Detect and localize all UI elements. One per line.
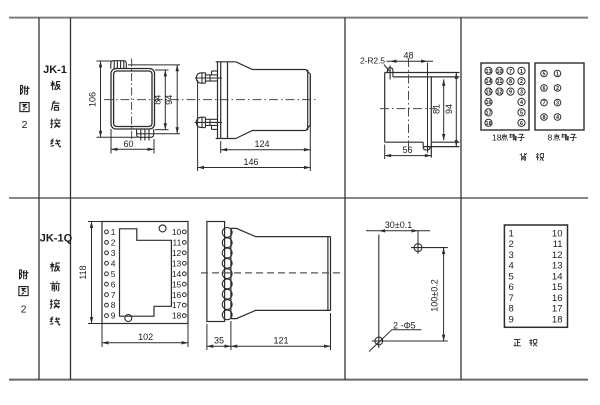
- svg-text:8: 8: [543, 115, 546, 121]
- svg-text:6: 6: [111, 279, 116, 289]
- svg-text:8: 8: [509, 304, 514, 315]
- svg-text:6: 6: [509, 282, 514, 293]
- svg-text:6: 6: [543, 86, 546, 92]
- svg-text:94: 94: [444, 104, 454, 114]
- svg-text:18: 18: [486, 121, 492, 127]
- svg-text:17: 17: [172, 300, 182, 310]
- svg-text:7: 7: [509, 293, 514, 304]
- svg-text:11: 11: [497, 79, 503, 85]
- svg-text:100±0.2: 100±0.2: [429, 279, 439, 311]
- svg-text:2: 2: [21, 304, 27, 316]
- svg-text:18: 18: [492, 132, 502, 142]
- svg-text:106: 106: [87, 92, 97, 107]
- svg-text:1: 1: [556, 72, 559, 78]
- svg-text:2-R2.5: 2-R2.5: [360, 56, 385, 66]
- svg-text:84: 84: [152, 95, 162, 105]
- svg-text:60: 60: [123, 139, 133, 149]
- svg-text:81: 81: [432, 104, 442, 114]
- svg-text:12: 12: [552, 250, 563, 261]
- svg-text:124: 124: [254, 139, 269, 149]
- svg-text:16: 16: [486, 100, 492, 106]
- svg-text:4: 4: [111, 258, 116, 268]
- svg-text:7: 7: [543, 101, 546, 107]
- svg-text:12: 12: [497, 90, 503, 96]
- svg-text:16: 16: [172, 290, 182, 300]
- svg-text:18: 18: [172, 311, 182, 321]
- svg-text:14: 14: [172, 269, 182, 279]
- svg-text:17: 17: [486, 110, 492, 116]
- svg-text:1: 1: [520, 69, 523, 75]
- svg-text:8: 8: [548, 132, 553, 142]
- svg-text:35: 35: [214, 335, 224, 345]
- svg-text:7: 7: [111, 290, 116, 300]
- svg-text:2: 2: [520, 79, 523, 85]
- svg-text:56: 56: [402, 145, 412, 155]
- svg-text:1: 1: [111, 227, 116, 237]
- svg-text:2: 2: [111, 238, 116, 248]
- svg-text:10: 10: [172, 227, 182, 237]
- svg-text:102: 102: [138, 332, 153, 342]
- svg-text:8: 8: [509, 79, 512, 85]
- svg-text:3: 3: [509, 250, 514, 261]
- svg-text:5: 5: [509, 271, 514, 282]
- svg-text:4: 4: [556, 115, 559, 121]
- svg-text:JK-1: JK-1: [43, 64, 67, 76]
- svg-text:JK-1Q: JK-1Q: [40, 232, 73, 244]
- svg-text:13: 13: [172, 258, 182, 268]
- svg-text:9: 9: [111, 311, 116, 321]
- svg-text:10: 10: [552, 228, 563, 239]
- svg-text:3: 3: [520, 90, 523, 96]
- svg-text:1: 1: [509, 228, 514, 239]
- svg-text:2: 2: [509, 239, 514, 250]
- svg-text:13: 13: [552, 261, 563, 272]
- svg-text:16: 16: [552, 293, 563, 304]
- svg-text:3: 3: [556, 101, 559, 107]
- svg-text:30±0.1: 30±0.1: [385, 220, 412, 230]
- svg-text:14: 14: [552, 271, 563, 282]
- svg-text:2: 2: [22, 119, 28, 131]
- svg-text:4: 4: [520, 100, 523, 106]
- svg-text:18: 18: [552, 314, 563, 325]
- svg-text:94: 94: [164, 95, 174, 105]
- svg-text:10: 10: [497, 69, 503, 75]
- svg-text:14: 14: [486, 79, 492, 85]
- svg-text:8: 8: [111, 300, 116, 310]
- svg-text:11: 11: [172, 238, 181, 248]
- svg-text:48: 48: [403, 51, 413, 61]
- svg-text:6: 6: [520, 121, 523, 127]
- svg-text:13: 13: [486, 69, 492, 75]
- svg-text:121: 121: [273, 335, 288, 345]
- svg-text:15: 15: [172, 279, 182, 289]
- svg-text:15: 15: [486, 90, 492, 96]
- svg-text:3: 3: [111, 248, 116, 258]
- svg-text:15: 15: [552, 282, 563, 293]
- svg-text:2: 2: [556, 86, 559, 92]
- svg-text:5: 5: [520, 110, 523, 116]
- svg-text:11: 11: [553, 239, 563, 250]
- svg-text:5: 5: [111, 269, 116, 279]
- svg-text:2 -Φ5: 2 -Φ5: [393, 321, 416, 331]
- svg-text:9: 9: [509, 90, 512, 96]
- svg-text:17: 17: [552, 304, 563, 315]
- svg-text:7: 7: [509, 69, 512, 75]
- svg-text:118: 118: [78, 265, 88, 279]
- svg-text:4: 4: [509, 261, 514, 272]
- svg-text:9: 9: [509, 314, 514, 325]
- svg-text:12: 12: [172, 248, 182, 258]
- svg-text:5: 5: [543, 72, 546, 78]
- svg-text:146: 146: [243, 157, 258, 167]
